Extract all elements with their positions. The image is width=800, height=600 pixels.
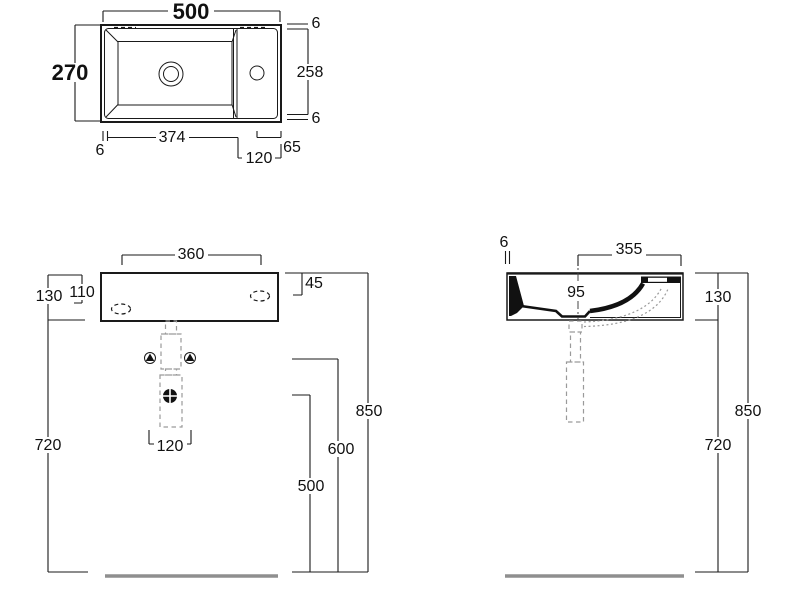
dim-clearance-height-label: 720: [35, 437, 62, 454]
dim-tap-to-edge-label: 65: [283, 139, 301, 156]
dim-overall-depth: 270: [47, 60, 93, 85]
section-view: 6 355 95 130 850 720: [500, 234, 765, 576]
dim-section-depth: 355: [612, 241, 646, 258]
dim-waste-spacing-label: 120: [157, 438, 184, 455]
dim-edge-left-label: 6: [96, 142, 105, 159]
dim-fixing-height-label: 110: [69, 284, 95, 301]
dim-bowl-depth-label: 95: [567, 284, 585, 301]
dim-fixing-spacing: 360: [175, 246, 208, 263]
front-view: 360 130 110 45 720 120 500 600 850: [32, 246, 386, 576]
washbasin-drawing: 500 270 6 258 6 6 374 65 120: [0, 0, 800, 600]
dim-fixing-height: 110: [66, 284, 98, 301]
dim-clearance-height: 720: [32, 437, 65, 454]
dim-fixing-spacing-label: 360: [178, 246, 205, 263]
dim-fixing-offset-label: 45: [305, 275, 323, 292]
dim-rim-height: 850: [352, 403, 386, 420]
dim-overall-depth-label: 270: [52, 60, 89, 85]
dim-overall-width: 500: [168, 0, 214, 24]
technical-drawing-canvas: 500 270 6 258 6 6 374 65 120: [0, 0, 800, 600]
section-deck-slot: [648, 278, 667, 282]
dim-drain-height-label: 500: [298, 478, 325, 495]
dim-wall-thickness-label: 6: [500, 234, 509, 251]
dim-inner-depth-label: 258: [297, 64, 324, 81]
dim-drain-height: 500: [295, 478, 328, 495]
section-waste-pipe-hidden: [567, 321, 584, 422]
dim-bowl-length-label: 374: [159, 129, 186, 146]
dim-section-clearance-height: 720: [701, 437, 735, 454]
dim-front-body-height: 130: [33, 288, 65, 305]
dim-section-body-height: 130: [702, 289, 735, 306]
dim-waste-spacing: 120: [154, 438, 187, 455]
dim-section-rim-height: 850: [731, 403, 765, 420]
dim-deck-width-label: 120: [246, 150, 273, 167]
front-basin-outline: [101, 273, 278, 321]
dim-edge-top-label: 6: [312, 15, 321, 32]
dim-bowl-length: 374: [156, 129, 189, 146]
dim-rim-height-label: 850: [356, 403, 383, 420]
plan-basin-outline: [101, 25, 281, 122]
fixing-bolt-right-icon: [185, 353, 196, 364]
front-waste-pipe-hidden: [160, 321, 182, 427]
fixing-bolt-left-icon: [145, 353, 156, 364]
drain-outlet-icon: [163, 389, 178, 404]
dim-edge-bottom-label: 6: [312, 110, 321, 127]
dim-section-depth-label: 355: [616, 241, 643, 258]
dim-bowl-depth: 95: [564, 284, 588, 301]
dim-front-body-height-label: 130: [36, 288, 63, 305]
dim-section-rim-height-label: 850: [735, 403, 762, 420]
plan-view: 500 270 6 258 6 6 374 65 120: [47, 0, 327, 167]
dim-section-body-height-label: 130: [705, 289, 732, 306]
dim-deck-width: 120: [242, 150, 275, 167]
dim-bolt-height-label: 600: [328, 441, 355, 458]
dim-overall-width-label: 500: [173, 0, 210, 24]
dim-bolt-height: 600: [324, 441, 358, 458]
dim-section-clearance-height-label: 720: [705, 437, 732, 454]
dim-inner-depth: 258: [294, 64, 327, 81]
